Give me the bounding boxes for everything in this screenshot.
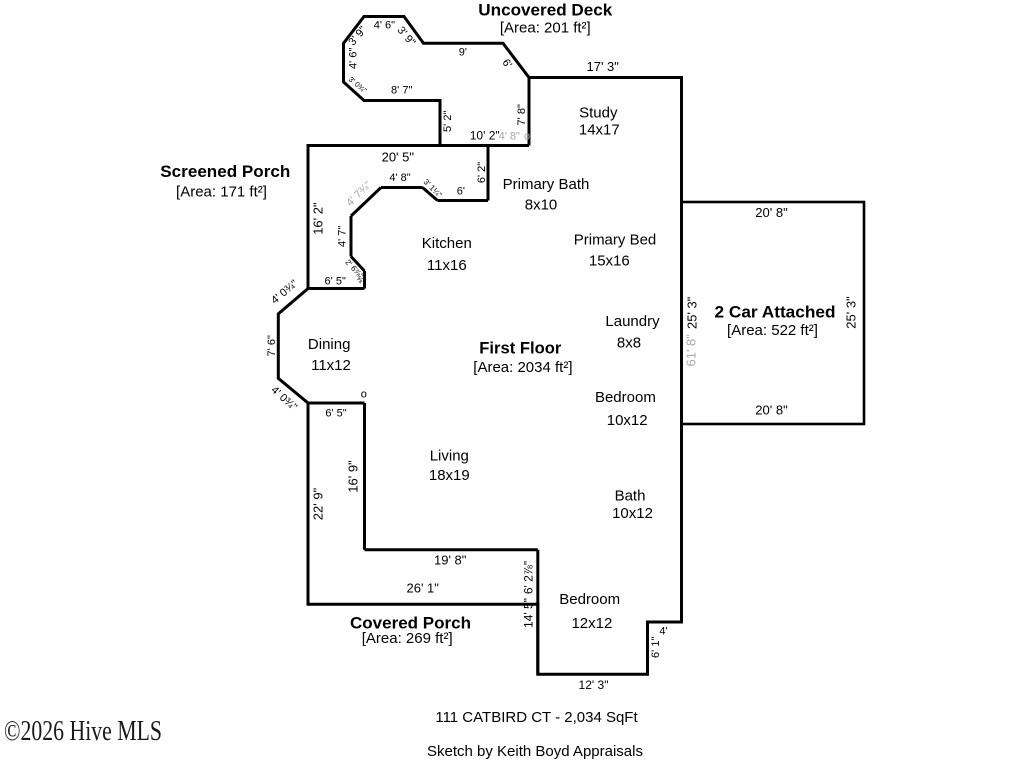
svg-text:Laundry: Laundry xyxy=(605,313,660,330)
svg-text:[Area: 2034 ft²]: [Area: 2034 ft²] xyxy=(473,359,572,376)
svg-text:o: o xyxy=(524,131,530,143)
svg-text:14' 5": 14' 5" xyxy=(522,598,536,628)
svg-text:8' 7": 8' 7" xyxy=(391,85,412,97)
svg-text:19' 8": 19' 8" xyxy=(434,552,467,567)
svg-text:15x16: 15x16 xyxy=(589,253,630,270)
svg-text:2 Car Attached: 2 Car Attached xyxy=(715,303,836,322)
svg-text:8x10: 8x10 xyxy=(525,197,558,214)
svg-text:4' 7": 4' 7" xyxy=(336,226,348,247)
svg-text:25' 3": 25' 3" xyxy=(844,296,859,329)
svg-text:4' 8": 4' 8" xyxy=(499,131,520,143)
svg-text:6' 5": 6' 5" xyxy=(325,407,346,419)
svg-text:o: o xyxy=(361,388,367,400)
svg-text:12' 3": 12' 3" xyxy=(579,678,609,692)
svg-text:Uncovered Deck: Uncovered Deck xyxy=(478,0,613,19)
svg-text:9': 9' xyxy=(459,47,467,59)
svg-text:6' 2": 6' 2" xyxy=(476,162,488,183)
svg-text:10' 2": 10' 2" xyxy=(470,129,500,143)
svg-text:7' 6": 7' 6" xyxy=(266,335,278,356)
svg-text:6': 6' xyxy=(457,185,465,197)
svg-text:[Area: 201 ft²]: [Area: 201 ft²] xyxy=(500,19,591,36)
svg-text:20' 8": 20' 8" xyxy=(755,403,788,418)
svg-text:4' 6": 4' 6" xyxy=(374,20,395,32)
svg-text:©2026 Hive MLS: ©2026 Hive MLS xyxy=(4,716,162,747)
svg-text:12x12: 12x12 xyxy=(571,615,612,632)
svg-text:7' 8": 7' 8" xyxy=(516,104,528,125)
svg-text:16' 9": 16' 9" xyxy=(346,460,361,493)
svg-text:Dining: Dining xyxy=(308,336,351,353)
svg-text:11x16: 11x16 xyxy=(427,257,467,274)
svg-text:10x12: 10x12 xyxy=(612,505,653,522)
svg-text:[Area: 269 ft²]: [Area: 269 ft²] xyxy=(362,630,453,647)
svg-text:8x8: 8x8 xyxy=(617,335,641,352)
svg-text:5' 2": 5' 2" xyxy=(442,111,454,132)
svg-text:17' 3": 17' 3" xyxy=(586,59,619,74)
svg-text:[Area: 522 ft²]: [Area: 522 ft²] xyxy=(727,322,818,339)
svg-text:20' 8": 20' 8" xyxy=(755,205,788,220)
svg-text:Kitchen: Kitchen xyxy=(422,235,472,252)
svg-text:10x12: 10x12 xyxy=(607,412,648,429)
svg-text:20' 5": 20' 5" xyxy=(382,150,415,165)
svg-text:16' 2": 16' 2" xyxy=(311,202,326,235)
svg-text:[Area: 171 ft²]: [Area: 171 ft²] xyxy=(176,184,267,201)
svg-text:4' 8": 4' 8" xyxy=(389,172,410,184)
svg-text:First Floor: First Floor xyxy=(479,339,561,358)
svg-text:61' 8": 61' 8" xyxy=(684,334,699,367)
svg-text:111 CATBIRD CT - 2,034 SqFt: 111 CATBIRD CT - 2,034 SqFt xyxy=(435,709,638,726)
svg-text:22' 9": 22' 9" xyxy=(311,487,326,520)
svg-text:Primary Bath: Primary Bath xyxy=(503,176,590,193)
svg-text:26' 1": 26' 1" xyxy=(406,581,439,596)
svg-text:18x19: 18x19 xyxy=(429,467,470,484)
svg-text:6' 5": 6' 5" xyxy=(325,276,346,288)
svg-text:14x17: 14x17 xyxy=(579,122,620,139)
svg-text:Bath: Bath xyxy=(615,488,646,505)
svg-text:Study: Study xyxy=(579,104,618,121)
svg-text:6' 1": 6' 1" xyxy=(650,637,662,658)
svg-text:Bedroom: Bedroom xyxy=(559,591,620,608)
svg-text:6' 2⅞": 6' 2⅞" xyxy=(522,561,536,594)
svg-text:11x12: 11x12 xyxy=(311,357,351,374)
svg-text:Primary Bed: Primary Bed xyxy=(574,232,657,249)
svg-text:25' 3": 25' 3" xyxy=(685,296,700,329)
svg-text:Living: Living xyxy=(430,448,469,465)
svg-text:Screened Porch: Screened Porch xyxy=(160,162,290,181)
svg-text:Sketch by Keith Boyd Appraisal: Sketch by Keith Boyd Appraisals xyxy=(427,743,643,760)
svg-text:4': 4' xyxy=(659,626,667,638)
svg-text:Bedroom: Bedroom xyxy=(595,389,656,406)
svg-text:4' 6": 4' 6" xyxy=(348,48,360,69)
